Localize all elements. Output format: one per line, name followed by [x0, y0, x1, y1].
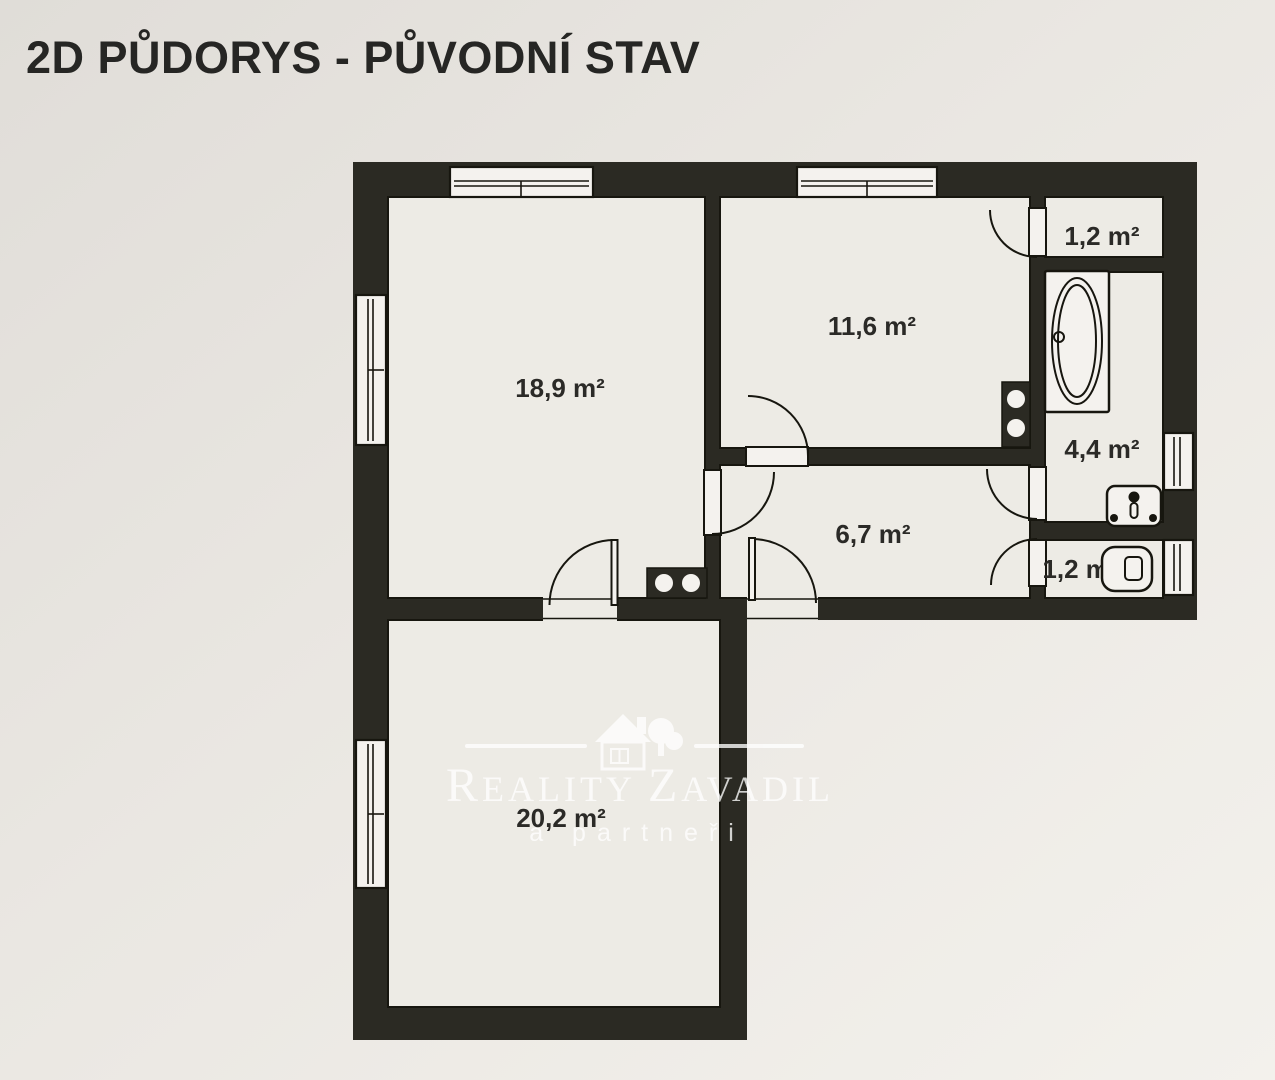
doorway	[543, 597, 617, 621]
doorway	[747, 597, 818, 621]
chimney-flue-block-2	[1002, 382, 1030, 447]
closet-1-2-label: 1,2 m²	[1064, 221, 1139, 251]
door-leaf	[746, 447, 808, 466]
watermark-line-right	[694, 744, 804, 748]
watermark-line-left	[465, 744, 587, 748]
window-top-room18	[450, 167, 593, 197]
chimney-flue-block-1	[647, 568, 707, 598]
window-right-bathroom	[1164, 433, 1193, 490]
bush-icon	[665, 732, 683, 750]
faucet-icon	[1129, 492, 1140, 503]
watermark-tagline: a partneři	[529, 819, 745, 847]
toilet	[1102, 547, 1152, 591]
page-title: 2D PŮDORYS - PŮVODNÍ STAV	[26, 29, 700, 83]
hallway-6-7-label: 6,7 m²	[835, 519, 910, 549]
bathroom-4-4-label: 4,4 m²	[1064, 434, 1139, 464]
room-18-9-label: 18,9 m²	[515, 373, 605, 403]
window-top-room11	[797, 167, 937, 197]
door-leaf	[704, 470, 721, 535]
window-right-wc	[1164, 540, 1193, 595]
floor-plan: 2D PŮDORYS - PŮVODNÍ STAV	[0, 0, 1275, 1080]
bathtub	[1045, 271, 1109, 412]
room-11-6-label: 11,6 m²	[828, 311, 917, 341]
door-leaf	[612, 540, 618, 605]
window-left-room18	[356, 295, 386, 445]
door-leaf	[749, 538, 755, 600]
window-left-room20	[356, 740, 386, 888]
door-leaf	[1029, 208, 1046, 256]
door-leaf	[1029, 467, 1046, 520]
sink	[1107, 486, 1161, 526]
